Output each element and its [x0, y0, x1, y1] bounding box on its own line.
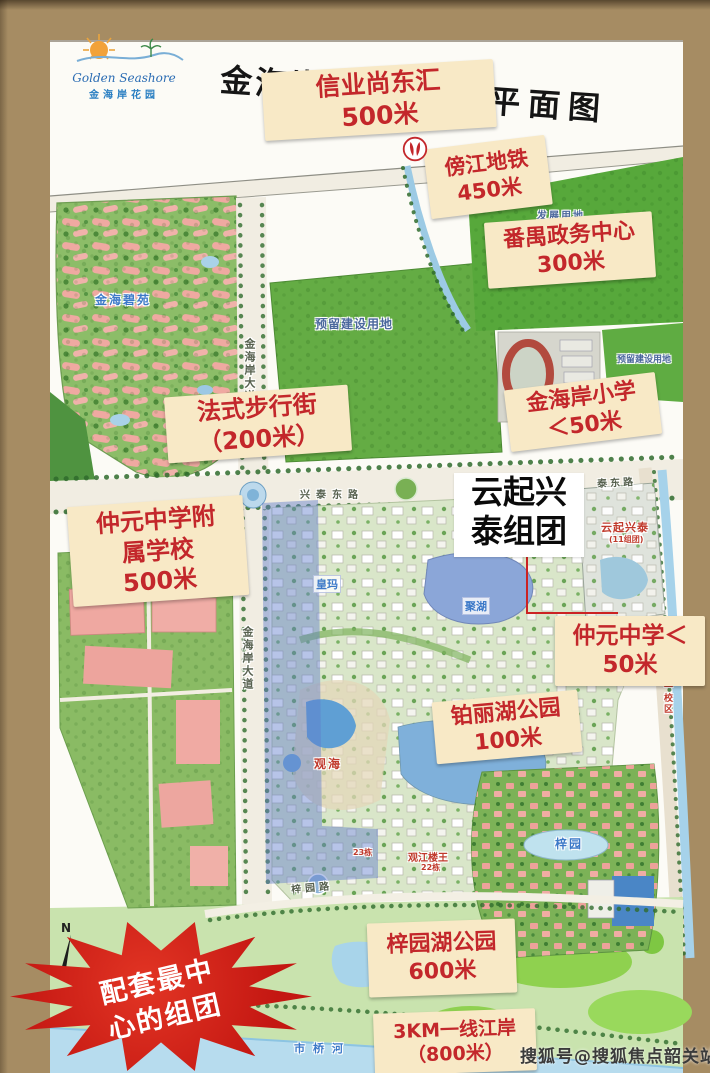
map-label-juhu-lake: 聚湖	[462, 597, 490, 615]
promo-badge-text: 配套最中 心的组团	[96, 952, 225, 1048]
map-label-school-campus: 一校区	[661, 682, 674, 715]
map-label-block-23: 23栋	[353, 847, 372, 858]
map-label-huangma: 皇玛	[313, 575, 341, 593]
map-label-xingtai-east-road: 兴泰东路	[300, 486, 364, 501]
callout-pangjiang-metro: 傍江地铁 450米	[423, 135, 553, 219]
map-label-yunqi-subplot: (11组团)	[609, 534, 643, 545]
brand-logo: Golden Seashore 金海岸花园	[58, 30, 190, 101]
location-map-poster: Golden Seashore 金海岸花园 金海岸花 平面图 信业尚东汇 500…	[0, 0, 710, 1073]
map-label-block-22: 22栋	[421, 862, 440, 873]
map-label-reserved-land-right: 预留建设用地	[617, 352, 671, 365]
callout-xinye-shangdonghui: 信业尚东汇 500米	[261, 59, 497, 141]
map-label-reserved-land-center: 预留建设用地	[315, 315, 393, 332]
callout-panyu-government-center: 番禺政务中心 300米	[484, 211, 656, 289]
map-label-ziyuan: 梓园	[555, 835, 583, 852]
map-label-guanhai: 观海	[314, 755, 342, 772]
callout-boli-lake-park: 铂丽湖公园 100米	[432, 690, 583, 764]
watermark-souhu: 搜狐号@搜狐焦点韶关站	[520, 1042, 710, 1067]
map-label-yunqi-xingtai: 云起兴泰	[601, 519, 649, 535]
callout-zhongyuan-middle-school: 仲元中学＜ 50米	[555, 616, 705, 686]
sun-seashore-icon	[59, 30, 189, 68]
callout-french-walking-street: 法式步行街 （200米）	[164, 385, 352, 464]
map-label-shiqiao-river: 市桥河	[294, 1040, 351, 1056]
metro-station-icon	[402, 136, 428, 166]
map-label-jinhaian-avenue-south: 金海岸大道	[239, 626, 255, 691]
pointer-line-vertical	[526, 557, 528, 614]
map-label-jinhai-biyuan: 金海碧苑	[95, 291, 151, 308]
callout-ziyuan-lake-park: 梓园湖公园 600米	[367, 918, 517, 997]
cluster-label-yunqi-xingtai: 云起兴 泰组团	[454, 473, 584, 557]
callout-zhongyuan-affiliated-school: 仲元中学附 属学校 500米	[67, 495, 250, 607]
map-title-right: 平面图	[487, 76, 610, 130]
logo-text-cn: 金海岸花园	[58, 86, 190, 101]
map-label-taidong-road: 泰东路	[597, 473, 637, 490]
pointer-line-horizontal	[526, 612, 618, 614]
callout-riverside-3km: 3KM一线江岸 （800米）	[373, 1008, 537, 1073]
logo-text-en: Golden Seashore	[58, 72, 190, 85]
